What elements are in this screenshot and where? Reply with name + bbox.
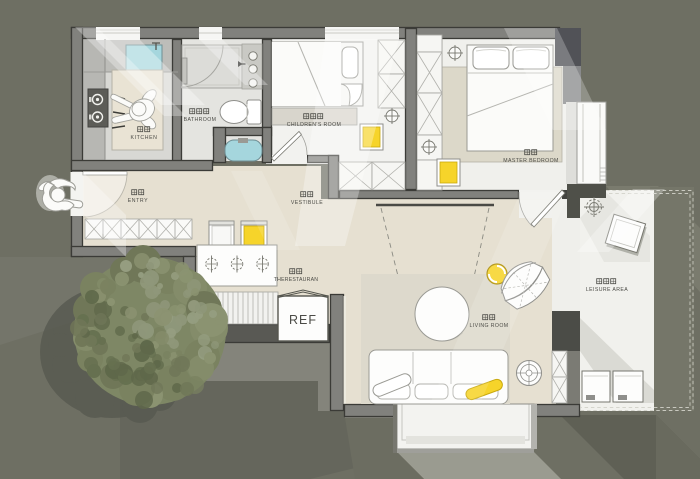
svg-text:LEISURE AREA: LEISURE AREA [586, 287, 628, 293]
svg-text:ENTRY: ENTRY [128, 198, 149, 204]
svg-text:VESTIBULE: VESTIBULE [291, 200, 323, 206]
svg-text:BATHROOM: BATHROOM [184, 117, 217, 123]
svg-text:THERESTAURAN: THERESTAURAN [274, 277, 318, 283]
svg-text:REF: REF [289, 313, 317, 327]
svg-text:MASTER BEDROOM: MASTER BEDROOM [503, 158, 558, 164]
svg-text:CHILDREN'S ROOM: CHILDREN'S ROOM [287, 122, 342, 128]
svg-text:LIVING ROOM: LIVING ROOM [470, 323, 509, 329]
svg-text:KITCHEN: KITCHEN [131, 135, 158, 141]
